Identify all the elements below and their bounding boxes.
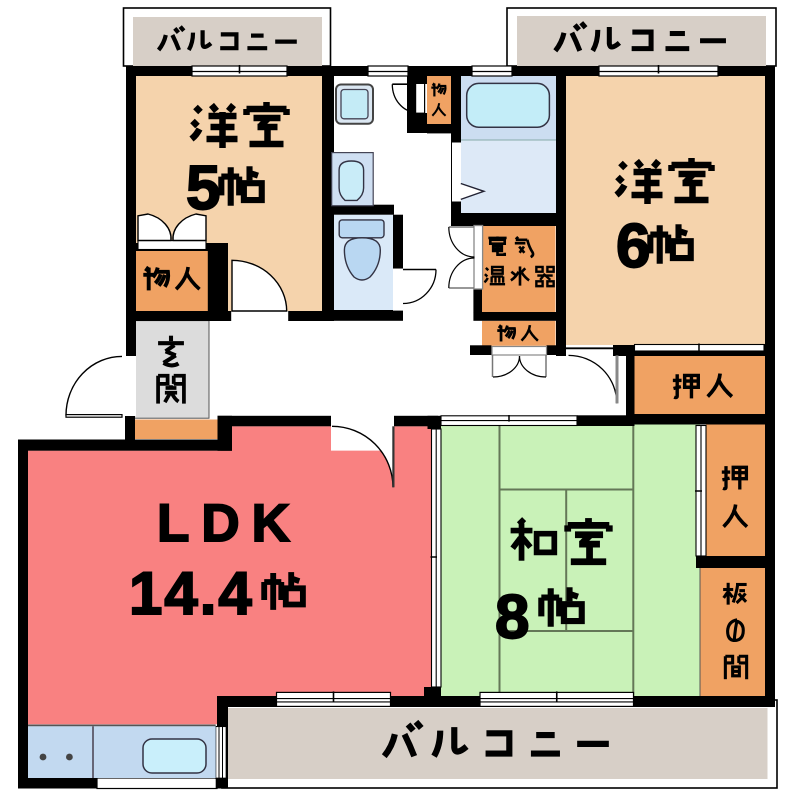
svg-text:8: 8 xyxy=(495,583,529,652)
svg-text:5: 5 xyxy=(186,154,220,223)
svg-text:LDK: LDK xyxy=(157,494,302,553)
svg-text:14.4: 14.4 xyxy=(129,560,254,627)
svg-text:6: 6 xyxy=(616,212,650,281)
